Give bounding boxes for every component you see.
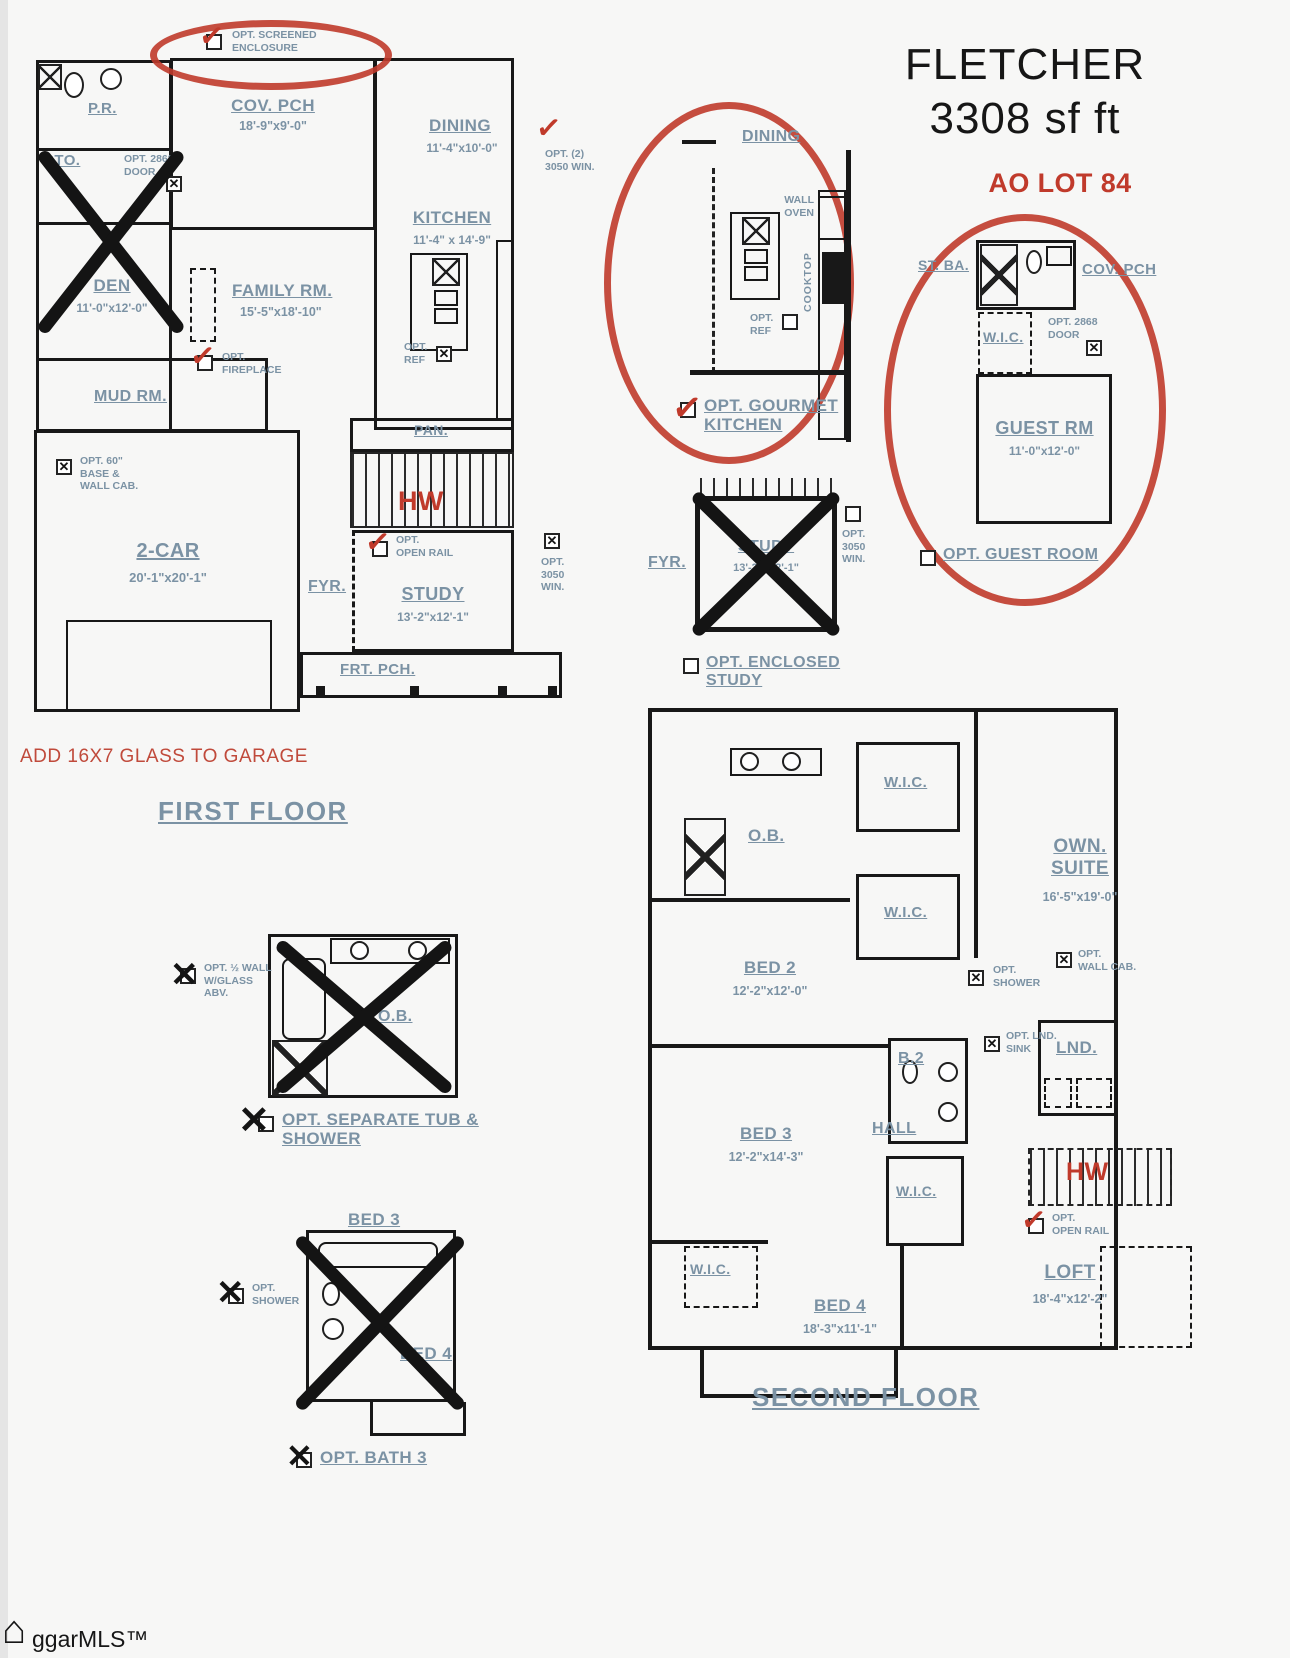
wall [682, 140, 716, 144]
room-label-own-suite: OWN. SUITE [1020, 836, 1140, 879]
opt-2-3050-win-label: OPT. (2) 3050 WIN. [545, 148, 595, 173]
plan-size: 3308 sf ft [860, 94, 1190, 144]
checkbox-x-ref: ✕ [436, 346, 452, 362]
red-checkmark-icon: ✓ [189, 341, 217, 373]
room-label-bed3: BED 3 [724, 1124, 808, 1143]
crossed-out-mark [36, 146, 186, 338]
wall [690, 370, 848, 375]
checkbox-3050-win2 [845, 506, 861, 522]
red-checkmark-icon: ✓ [1020, 1205, 1048, 1237]
room-label-dining: DINING [410, 116, 510, 135]
second-floor-heading: SECOND FLOOR [752, 1382, 979, 1413]
range-symbol [432, 258, 460, 286]
dryer-symbol [1076, 1078, 1112, 1108]
black-x-mark: ✕ [216, 1276, 245, 1310]
sink-symbol [782, 752, 801, 771]
shower-symbol [684, 818, 726, 896]
room-label-2car: 2-CAR [110, 540, 226, 563]
room-dim-family: 15'-5"x18'-10" [240, 305, 322, 319]
opt-wall-cab-label: OPT. WALL CAB. [1078, 948, 1136, 973]
opt-guest-room-caption: OPT. GUEST ROOM [943, 546, 1098, 564]
room-label-st-ba: ST. BA. [918, 258, 969, 274]
room-dim-own-suite: 16'-5"x19'-0" [1020, 890, 1140, 904]
opt-separate-tub-caption: OPT. SEPARATE TUB & SHOWER [282, 1110, 479, 1149]
room-dim-loft: 18'-4"x12'-2" [1012, 1292, 1128, 1306]
opt-open-rail-label: OPT. OPEN RAIL [396, 534, 453, 559]
crossed-out-mark [292, 1232, 468, 1414]
room-label-wic2: W.I.C. [884, 904, 927, 921]
washer-symbol [1044, 1078, 1072, 1108]
room-dim-bed4: 18'-3"x11'-1" [782, 1322, 898, 1336]
room-label-pan: PAN. [414, 423, 448, 439]
red-checkmark-icon: ✓ [364, 527, 392, 559]
porch-post [498, 686, 507, 695]
opt-ref-label2: OPT. REF [750, 312, 773, 337]
shower-symbol [980, 244, 1018, 306]
room-label-lnd: LND. [1056, 1038, 1097, 1057]
opt-fireplace-label: OPT. FIREPLACE [222, 351, 282, 376]
room-label-bed2: BED 2 [728, 958, 812, 977]
lot-number: AO LOT 84 [930, 168, 1190, 199]
room-label-family: FAMILY RM. [232, 281, 332, 300]
sink-cabinet [1046, 246, 1072, 266]
room-label-dining2: DINING [742, 128, 800, 146]
sink-symbol [938, 1062, 958, 1082]
room-label-bed4: BED 4 [798, 1296, 882, 1315]
hw-stairs-label2: HW [1066, 1158, 1108, 1187]
garage-door [66, 620, 272, 712]
sink-symbol [938, 1102, 958, 1122]
opt-60-base-label: OPT. 60" BASE & WALL CAB. [80, 455, 138, 493]
plan-title: FLETCHER [860, 40, 1190, 90]
island-cabinet [434, 308, 458, 324]
room-label-ob: O.B. [748, 826, 785, 845]
porch-post [410, 686, 419, 695]
house-icon: ⌂ [2, 1608, 26, 1653]
checkbox-guest-room [920, 550, 936, 566]
black-x-mark: ✕ [170, 958, 199, 992]
opt-half-wall-label: OPT. ½ WALL W/GLASS ABV. [204, 962, 272, 1000]
wall [648, 898, 850, 902]
wall-oven-cabinet [818, 196, 846, 240]
room-dim-dining: 11'-4"x10'-0" [407, 141, 517, 155]
wall [648, 1240, 768, 1244]
room-label-wic4: W.I.C. [690, 1262, 731, 1278]
fireplace-optional-outline [190, 268, 216, 342]
crossed-out-mark [272, 938, 456, 1096]
island-cabinet [744, 249, 768, 264]
room-label-kitchen: KITCHEN [398, 208, 506, 227]
wall-oven-label: WALL OVEN [772, 194, 814, 219]
room-dim-bed3: 12'-2"x14'-3" [710, 1150, 822, 1164]
opt-gourmet-caption: OPT. GOURMET KITCHEN [704, 396, 838, 435]
range-symbol [742, 217, 770, 245]
opt-3050-win2-label: OPT. 3050 WIN. [842, 528, 865, 566]
room-label-b2: B.2 [898, 1050, 924, 1068]
opt-enclosed-study-caption: OPT. ENCLOSED STUDY [706, 654, 840, 690]
sink-symbol [740, 752, 759, 771]
room-label-mud: MUD RM. [94, 388, 167, 406]
room-label-wic3: W.I.C. [896, 1184, 937, 1200]
kitchen-counter [496, 240, 514, 420]
island-cabinet [744, 266, 768, 281]
checkbox-x-shower2f: ✕ [968, 970, 984, 986]
checkbox-x-lnd-sink: ✕ [984, 1036, 1000, 1052]
wall [900, 1244, 904, 1350]
room-label-cov-pch: COV. PCH [208, 96, 338, 115]
wic3-room [886, 1156, 964, 1246]
room-dim-bed2: 12'-2"x12'-0" [714, 984, 826, 998]
checkbox-x-3050-win: ✕ [544, 533, 560, 549]
porch-post [548, 686, 557, 695]
room-label-guest: GUEST RM [992, 418, 1097, 439]
checkbox-ref2 [782, 314, 798, 330]
wall-dashed [712, 168, 715, 373]
opt-bath3-caption: OPT. BATH 3 [320, 1448, 427, 1467]
red-checkmark-icon: ✓ [670, 389, 704, 428]
porch-post [316, 686, 325, 695]
opt-shower2f-label: OPT. SHOWER [993, 964, 1040, 989]
toilet-symbol [1026, 250, 1042, 274]
cooktop-label: COOKTOP [802, 248, 814, 312]
opt-ref-label: OPT. REF [404, 341, 427, 366]
room-dim-kitchen: 11'-4" x 14'-9" [394, 233, 510, 247]
room-dim-cov-pch: 18'-9"x9'-0" [208, 119, 338, 133]
wall [974, 708, 978, 958]
opt-2868-door2-label: OPT. 2868 DOOR [1048, 316, 1098, 341]
wall [648, 1044, 888, 1048]
checkbox-enclosed-study [683, 658, 699, 674]
hw-stairs-label: HW [398, 486, 444, 517]
cooktop-symbol [822, 252, 846, 304]
room-label-loft: LOFT [1028, 1262, 1112, 1284]
black-x-mark: ✕ [238, 1102, 270, 1140]
opt-3050-win-label: OPT. 3050 WIN. [541, 556, 564, 594]
garage-glass-note: ADD 16X7 GLASS TO GARAGE [20, 746, 308, 768]
toilet-symbol [64, 72, 84, 98]
wall [846, 150, 851, 442]
opt-open-rail2-label: OPT. OPEN RAIL [1052, 1212, 1109, 1237]
room-label-cov-pch2: COV. PCH [1082, 261, 1156, 278]
opt-screened-enclosure-label: OPT. SCREENED ENCLOSURE [232, 29, 317, 54]
red-checkmark-icon: ✓ [198, 21, 226, 53]
page-edge-strip [0, 0, 8, 1658]
crossed-out-mark [690, 490, 842, 638]
first-floor-heading: FIRST FLOOR [158, 796, 348, 827]
sink-symbol [100, 68, 122, 90]
island-cabinet [434, 290, 458, 306]
room-label-wic-guest: W.I.C. [983, 330, 1024, 346]
room-label-hall: HALL [872, 1120, 916, 1138]
closet-symbol [38, 64, 62, 90]
room-dim-study: 13'-2"x12'-1" [388, 610, 478, 624]
room-label-pr: P.R. [88, 100, 117, 117]
watermark-text: ggarMLS™ [32, 1626, 148, 1653]
wall [700, 1348, 704, 1398]
room-label-study: STUDY [392, 584, 474, 605]
red-checkmark-icon: ✓ [535, 113, 563, 145]
room-dim-2car: 20'-1"x20'-1" [106, 570, 230, 585]
room-dim-guest: 11'-0"x12'-0" [992, 444, 1097, 458]
room-label-wic1: W.I.C. [884, 774, 927, 791]
opt-lnd-sink-label: OPT. LND. SINK [1006, 1030, 1057, 1055]
room-label-fyr: FYR. [308, 578, 346, 596]
floor-plan-sheet: FLETCHER 3308 sf ft AO LOT 84 P.R. STO. [0, 0, 1290, 1658]
black-x-mark: ✕ [286, 1440, 313, 1472]
checkbox-x-60-base: ✕ [56, 459, 72, 475]
room-label-fyr2: FYR. [648, 554, 686, 572]
checkbox-x-wall-cab: ✕ [1056, 952, 1072, 968]
checkbox-x-2868-door2: ✕ [1086, 340, 1102, 356]
room-label-frt-pch: FRT. PCH. [340, 661, 415, 678]
room-label-bed3-inset: BED 3 [348, 1210, 400, 1229]
